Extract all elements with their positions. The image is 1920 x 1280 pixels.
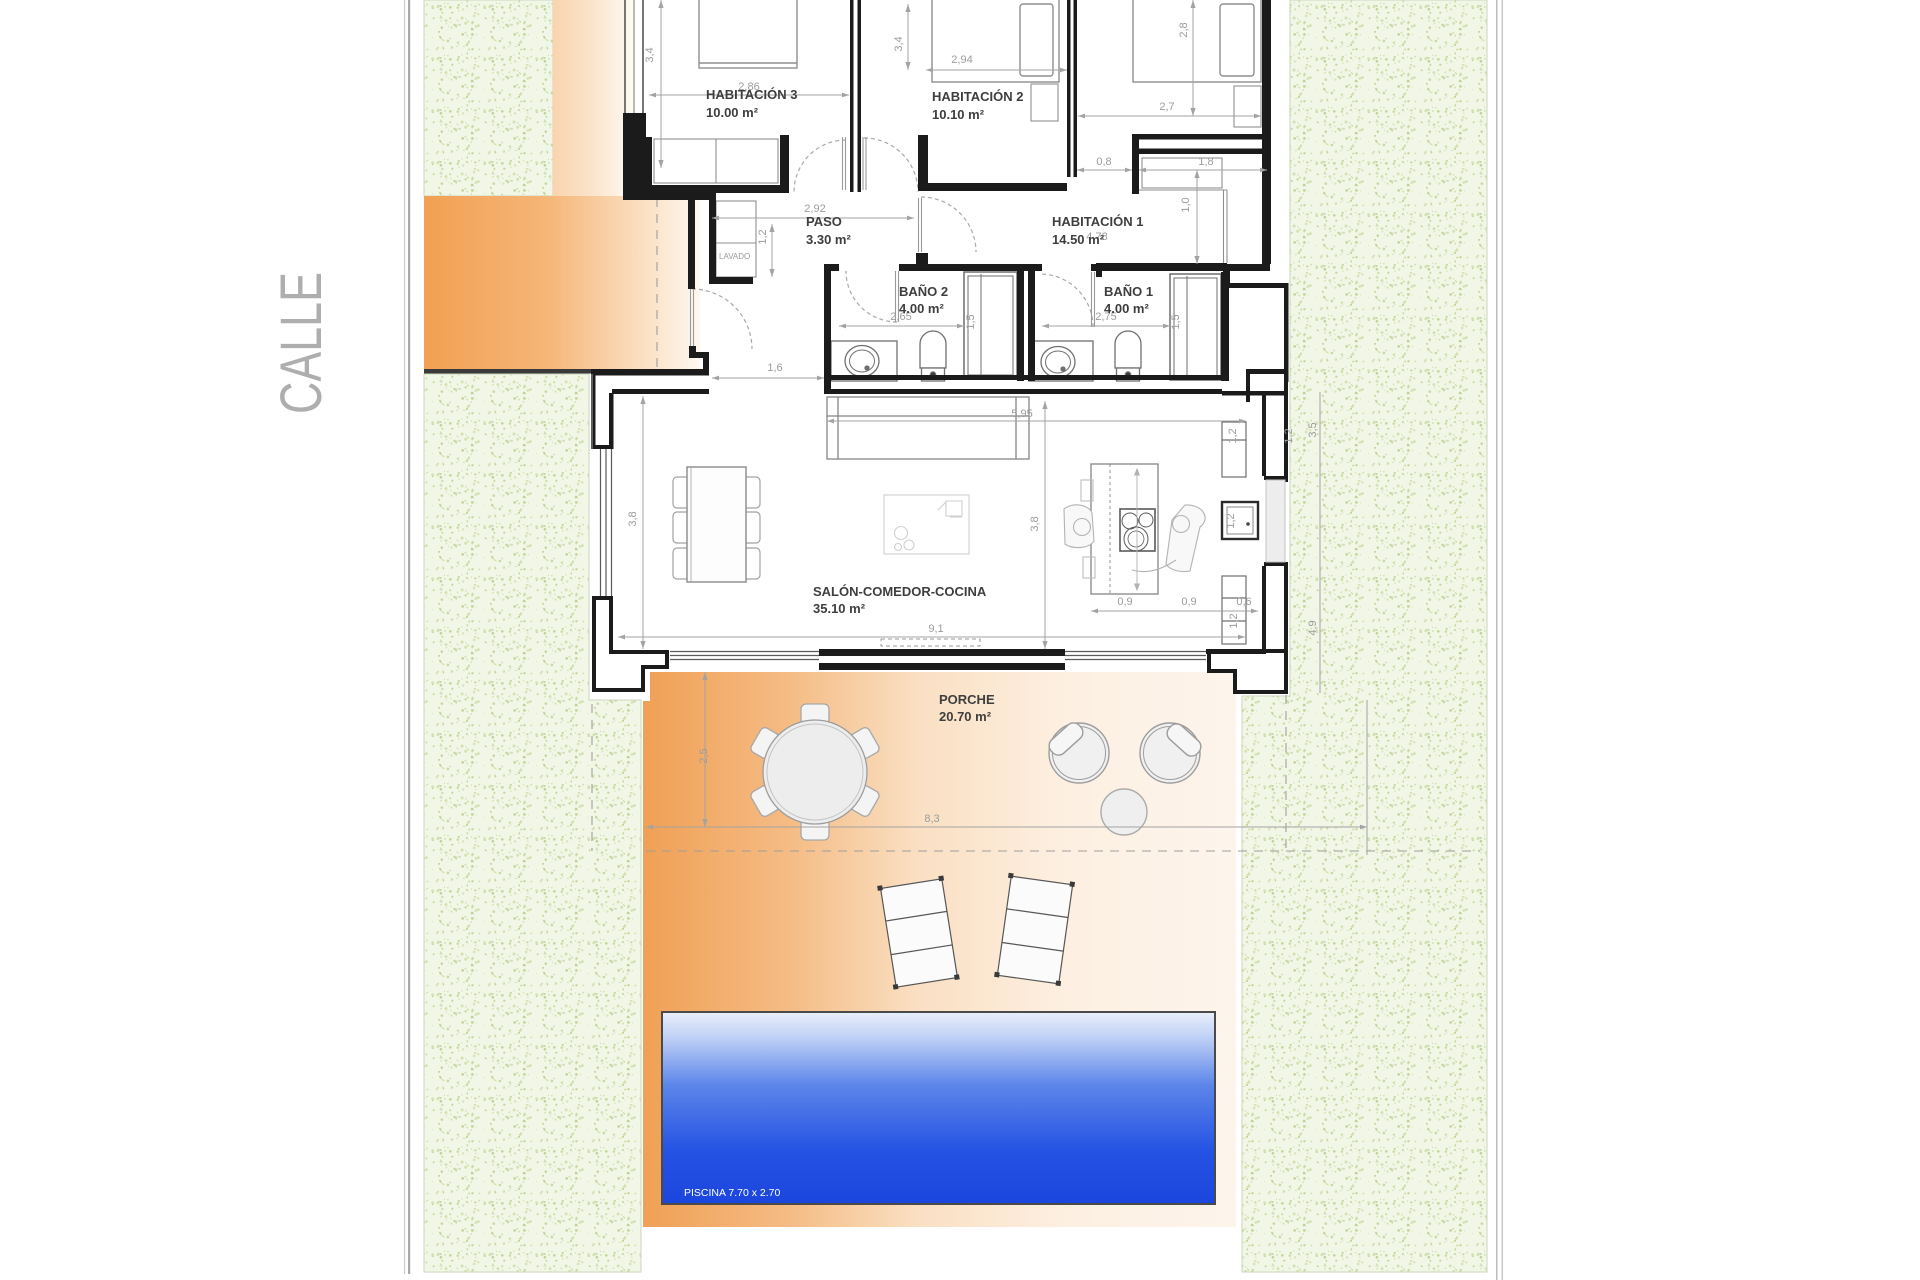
svg-text:3.30 m²: 3.30 m² [806, 232, 851, 247]
svg-text:HABITACIÓN 1: HABITACIÓN 1 [1052, 214, 1143, 229]
svg-text:PISCINA 7.70 x 2.70: PISCINA 7.70 x 2.70 [684, 1187, 780, 1199]
svg-text:4,9: 4,9 [1307, 620, 1319, 635]
svg-text:3,4: 3,4 [893, 36, 905, 51]
svg-text:0,8: 0,8 [1096, 156, 1111, 168]
svg-text:1,5: 1,5 [1170, 314, 1182, 329]
svg-text:1,6: 1,6 [767, 362, 782, 374]
svg-text:BAÑO 1: BAÑO 1 [1104, 284, 1153, 299]
svg-text:1,8: 1,8 [1198, 156, 1213, 168]
svg-text:LAVADO: LAVADO [719, 252, 750, 261]
svg-text:1,2: 1,2 [1283, 428, 1295, 443]
svg-text:9,1: 9,1 [928, 623, 943, 635]
svg-text:BAÑO 2: BAÑO 2 [899, 284, 948, 299]
svg-text:CALLE: CALLE [269, 272, 334, 414]
svg-text:0,9: 0,9 [1181, 596, 1196, 608]
svg-text:1,2: 1,2 [1225, 513, 1237, 528]
svg-text:35.10 m²: 35.10 m² [813, 601, 866, 616]
svg-text:3,5: 3,5 [1307, 422, 1319, 437]
svg-text:10.00 m²: 10.00 m² [706, 105, 759, 120]
svg-text:1,2: 1,2 [757, 229, 769, 244]
svg-text:1,2: 1,2 [1228, 613, 1240, 628]
svg-text:SALÓN-COMEDOR-COCINA: SALÓN-COMEDOR-COCINA [813, 584, 987, 599]
svg-text:1,2: 1,2 [1227, 428, 1239, 443]
svg-text:2,7: 2,7 [1159, 101, 1174, 113]
svg-text:HABITACIÓN 3: HABITACIÓN 3 [706, 87, 797, 102]
svg-text:2,94: 2,94 [951, 54, 972, 66]
svg-text:1,5: 1,5 [965, 314, 977, 329]
svg-text:2,5: 2,5 [698, 748, 710, 763]
svg-text:10.10 m²: 10.10 m² [932, 107, 985, 122]
svg-text:3,4: 3,4 [644, 47, 656, 62]
svg-text:2,8: 2,8 [1178, 22, 1190, 37]
svg-text:3,8: 3,8 [627, 511, 639, 526]
svg-text:1,0: 1,0 [1180, 197, 1192, 212]
svg-text:PASO: PASO [806, 214, 842, 229]
svg-text:0,9: 0,9 [1117, 596, 1132, 608]
svg-text:4.00 m²: 4.00 m² [1104, 301, 1149, 316]
svg-text:20.70 m²: 20.70 m² [939, 709, 992, 724]
svg-text:5,95: 5,95 [1011, 408, 1032, 420]
svg-text:3,8: 3,8 [1029, 516, 1041, 531]
svg-text:PORCHE: PORCHE [939, 692, 995, 707]
svg-text:HABITACIÓN 2: HABITACIÓN 2 [932, 89, 1023, 104]
svg-text:14.50 m²: 14.50 m² [1052, 232, 1105, 247]
svg-text:8,3: 8,3 [924, 813, 939, 825]
svg-text:4.00 m²: 4.00 m² [899, 301, 944, 316]
svg-text:0,6: 0,6 [1236, 596, 1251, 608]
